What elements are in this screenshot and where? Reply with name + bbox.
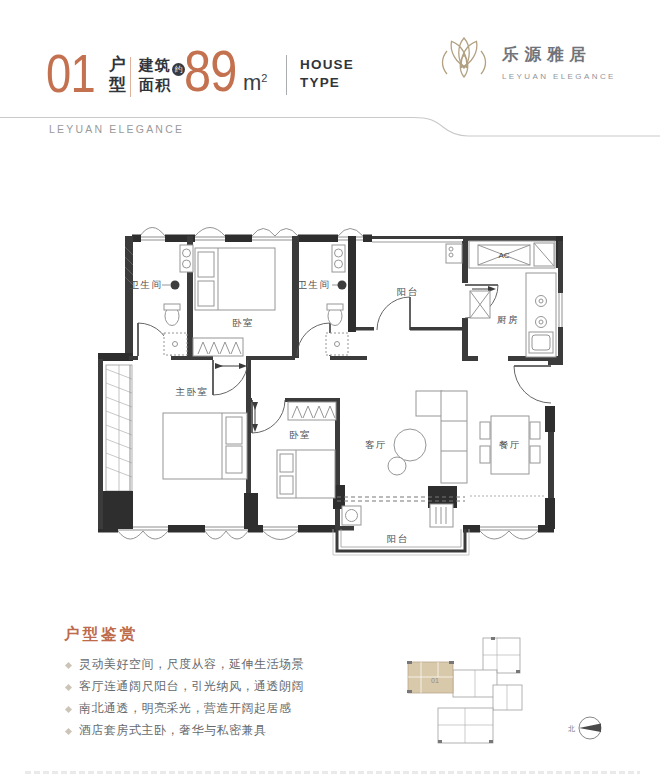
- diamond-bullet-icon: [65, 662, 72, 669]
- bottom-windows: [118, 526, 298, 540]
- feature-text: 灵动美好空间，尺度从容，延伸生活场景: [79, 658, 304, 670]
- feature-item: 客厅连通阔尺阳台，引光纳风，通透朗阔: [64, 680, 404, 692]
- furniture: [162, 241, 556, 527]
- sink-icon: [338, 281, 347, 290]
- feature-item: 南北通透，明亮采光，营造开阔起居感: [64, 702, 404, 714]
- room-label-balcony-top: 阳台: [397, 286, 419, 297]
- room-label-bedroom-top: 卧室: [232, 317, 254, 328]
- ac-label: AC: [498, 251, 509, 260]
- key-plan: 01 北: [405, 625, 635, 770]
- room-label-balcony-bottom: 阳台: [387, 533, 409, 544]
- diamond-bullet-icon: [65, 706, 72, 713]
- diamond-bullet-icon: [65, 684, 72, 691]
- keyplan-unit-label: 01: [431, 677, 439, 684]
- room-label-bedroom-second: 卧室: [289, 429, 311, 440]
- banner-text: LEYUAN ELEGANCE: [49, 123, 184, 135]
- feature-item: 酒店套房式主卧，奢华与私密兼具: [64, 724, 404, 736]
- room-label-dining-room: 餐厅: [499, 439, 521, 450]
- feature-text: 客厅连通阔尺阳台，引光纳风，通透朗阔: [79, 680, 304, 692]
- features-section: 户型鉴赏 灵动美好空间，尺度从容，延伸生活场景 客厅连通阔尺阳台，引光纳风，通透…: [64, 624, 404, 746]
- room-label-bathroom-left: 卫生间: [130, 279, 163, 290]
- sink-icon: [171, 281, 180, 290]
- room-label-living-room: 客厅: [365, 439, 387, 450]
- feature-text: 酒店套房式主卧，奢华与私密兼具: [79, 724, 267, 736]
- room-label-kitchen: 厨房: [497, 314, 519, 325]
- features-title: 户型鉴赏: [64, 624, 404, 645]
- diamond-bullet-icon: [65, 728, 72, 735]
- room-label-bathroom-right: 卫生间: [298, 279, 331, 290]
- features-list: 灵动美好空间，尺度从容，延伸生活场景 客厅连通阔尺阳台，引光纳风，通透朗阔 南北…: [64, 658, 404, 736]
- feature-item: 灵动美好空间，尺度从容，延伸生活场景: [64, 658, 404, 670]
- feature-text: 南北通透，明亮采光，营造开阔起居感: [79, 702, 292, 714]
- north-label: 北: [568, 725, 575, 733]
- room-label-master-bedroom: 主卧室: [176, 386, 209, 397]
- north-compass-icon: 北: [568, 717, 601, 739]
- floorplan-poster: 01 户 型 建筑 面积 约 89 m2 HOUSE TYPE 乐源雅居 LEY…: [0, 0, 660, 774]
- floor-plan: 卫生间 卧室 卫生间 阳台 厨房 主卧室 卧室 客厅 餐厅 阳台 AC: [80, 195, 580, 615]
